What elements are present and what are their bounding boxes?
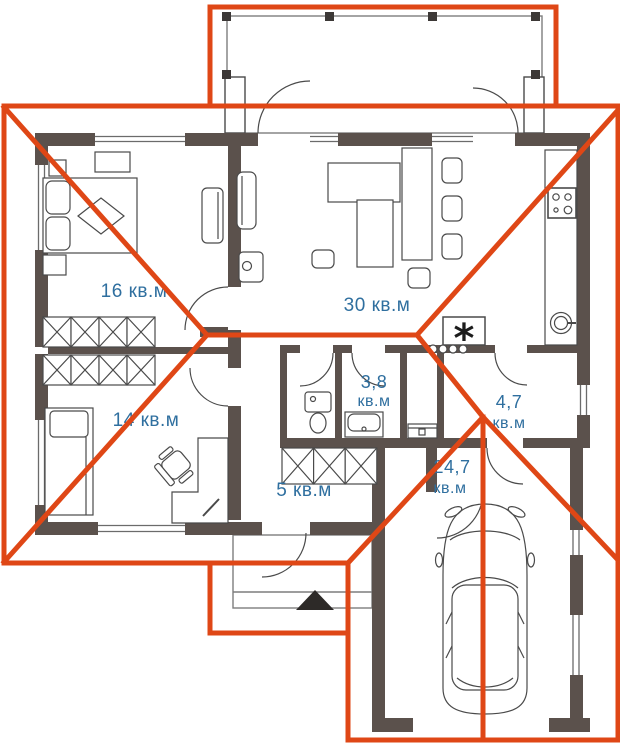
wardrobe-x-hallway (282, 448, 377, 484)
entry-porch (233, 535, 372, 608)
floor-plan-drawing: 16 кв.м 30 кв.м 14 кв.м 5 кв.м 3,8 кв.м … (0, 0, 620, 750)
window-living-right (432, 137, 473, 142)
label-hallway: 5 кв.м (276, 480, 332, 501)
window-garage-1 (573, 530, 579, 555)
door-terrace-right (473, 88, 518, 133)
entrance-arrow-icon (296, 590, 334, 610)
label-living: 30 кв.м (344, 295, 411, 316)
dining-set-icon (312, 148, 462, 288)
window-entry-hall (581, 385, 587, 415)
terrace-posts (222, 12, 540, 79)
stove-icon (548, 188, 576, 218)
label-bathroom-value: 3,8 (361, 372, 388, 392)
floor-plan-canvas: 16 кв.м 30 кв.м 14 кв.м 5 кв.м 3,8 кв.м … (0, 0, 620, 750)
terrace (225, 16, 544, 133)
label-bathroom-unit: кв.м (358, 393, 391, 410)
kitchen-counter-icon (545, 150, 577, 345)
label-bedroom-large: 16 кв.м (101, 281, 168, 302)
window-bedroom-small-side (39, 420, 45, 505)
porch-outline (233, 535, 372, 608)
window-living-left (310, 137, 338, 142)
toilet-icon (305, 392, 331, 433)
office-chair-icon (151, 443, 197, 490)
door-bedroom-large (185, 287, 228, 330)
door-entry-hall (495, 353, 527, 385)
window-garage-2 (573, 615, 579, 675)
washing-machine-icon (408, 424, 437, 438)
label-garage-unit: кв.м (434, 480, 467, 497)
terrace-outline (227, 16, 542, 133)
window-bedroom-small-bottom (98, 526, 185, 532)
door-bedroom-small (190, 368, 228, 406)
label-entry-value: 4,7 (496, 392, 523, 412)
boiler-asterisk: * (454, 316, 475, 362)
wardrobe-bedroom-icon (202, 188, 223, 243)
window-bedroom-large-top (95, 137, 185, 142)
bath-sink-icon (345, 412, 383, 437)
door-entrance (262, 533, 306, 577)
dresser-icon (239, 252, 263, 282)
wardrobe-x-row-bottom (43, 355, 155, 385)
shelf-living-icon (237, 172, 256, 229)
wardrobe-x-row-top (43, 317, 155, 347)
bed-large-icon (43, 152, 137, 275)
roof-terrace (210, 7, 556, 106)
bed-small-icon (45, 408, 93, 515)
door-wc (300, 353, 333, 386)
